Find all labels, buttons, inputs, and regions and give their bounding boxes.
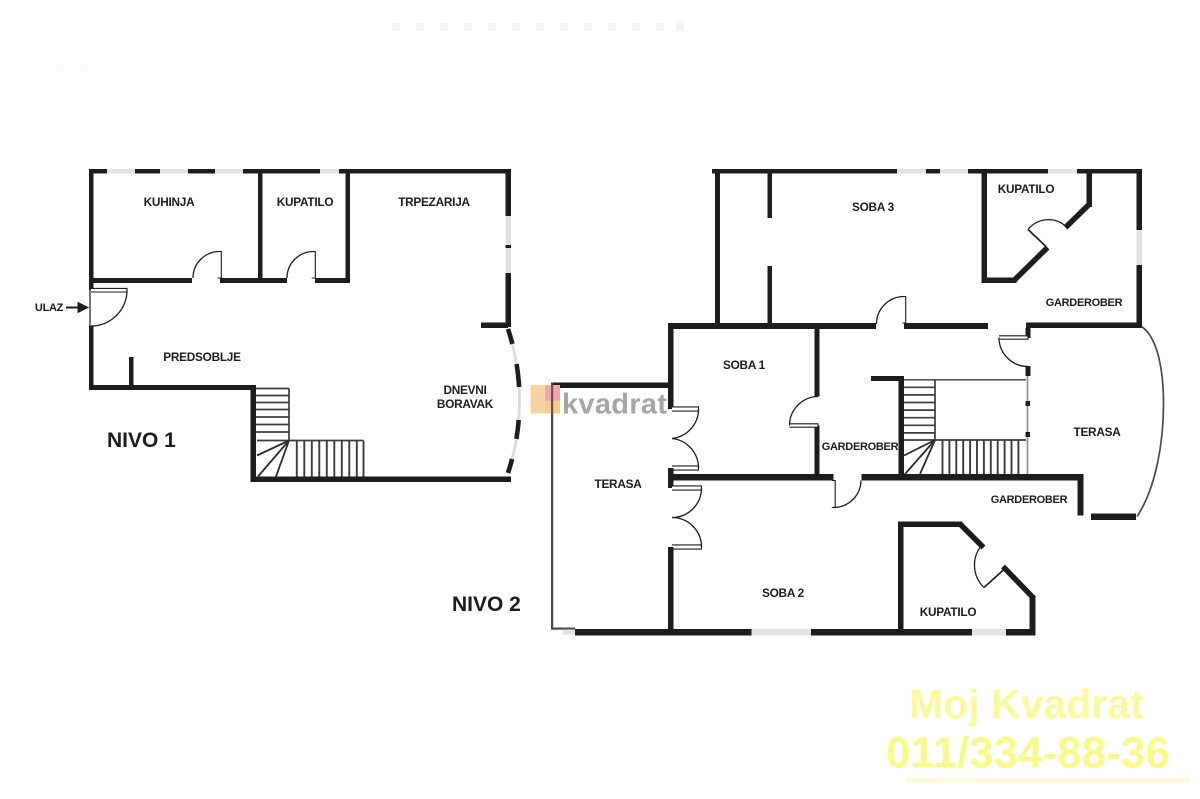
svg-text:NIVO 1: NIVO 1	[107, 429, 176, 452]
svg-text:GARDEROBER: GARDEROBER	[1046, 297, 1123, 309]
svg-text:TERASA: TERASA	[594, 477, 642, 491]
svg-text:PREDSOBLJE: PREDSOBLJE	[163, 350, 241, 364]
svg-text:GARDEROBER: GARDEROBER	[991, 494, 1068, 506]
svg-text:TRPEZARIJA: TRPEZARIJA	[398, 195, 470, 209]
svg-text:BORAVAK: BORAVAK	[437, 397, 494, 411]
svg-text:DNEVNI: DNEVNI	[443, 383, 486, 397]
svg-text:GARDEROBER: GARDEROBER	[822, 441, 899, 453]
svg-text:NIVO 2: NIVO 2	[452, 593, 521, 616]
svg-text:SOBA 3: SOBA 3	[852, 200, 895, 214]
svg-text:KUPATILO: KUPATILO	[920, 605, 977, 619]
svg-text:KUHINJA: KUHINJA	[144, 195, 195, 209]
svg-text:SOBA 2: SOBA 2	[762, 586, 805, 600]
svg-text:TERASA: TERASA	[1073, 425, 1121, 439]
svg-text:KUPATILO: KUPATILO	[277, 195, 334, 209]
svg-text:KUPATILO: KUPATILO	[998, 182, 1055, 196]
svg-text:011/334-88-36: 011/334-88-36	[886, 729, 1170, 778]
svg-text:kvadrat: kvadrat	[562, 389, 667, 421]
svg-text:Moj Kvadrat: Moj Kvadrat	[909, 681, 1144, 727]
svg-text:SOBA 1: SOBA 1	[723, 358, 766, 372]
svg-text:ULAZ: ULAZ	[35, 302, 64, 314]
